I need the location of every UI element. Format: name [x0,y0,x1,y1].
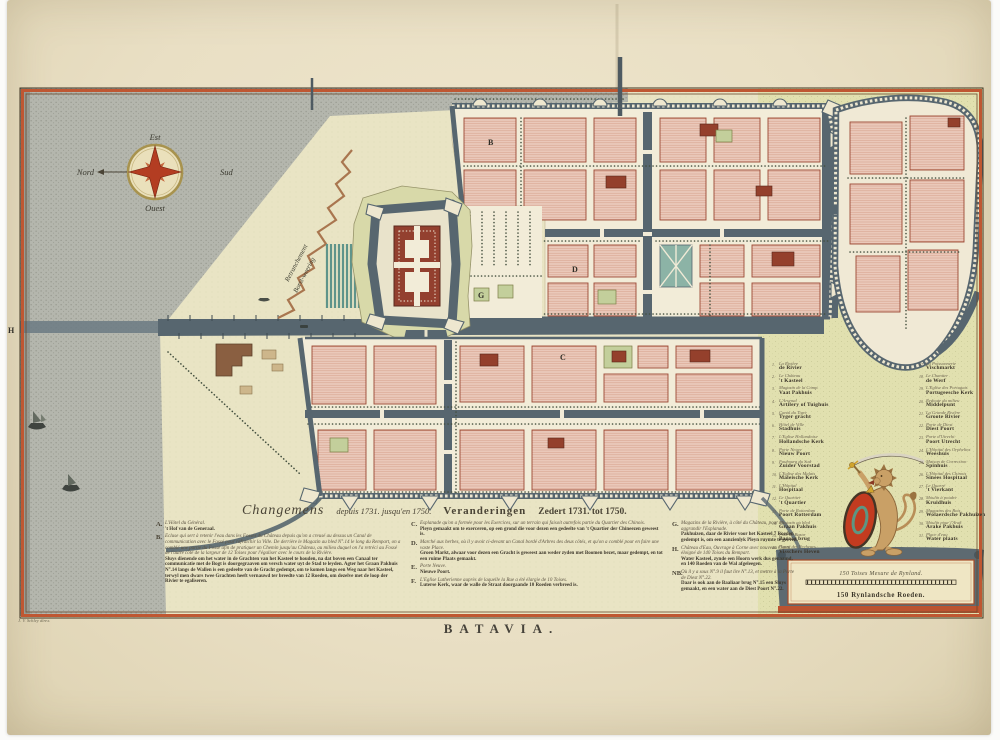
changes-entry: H.Château d'Eau, Ouvrage à Corne avec no… [672,546,798,569]
changes-entry-letter: B. [156,534,162,541]
legend-entry: 21.La Grande RivièreGroote Rivier [919,410,985,421]
changes-dates-dutch: Zedert 1731. tot 1750. [538,507,626,517]
legend-entry: 24.L'Hôpital des OrphelinsWeeshuis [919,447,985,458]
legend-entry: 22.Porte de DiestDiest Poort [919,422,985,433]
changes-entry-french: Ecluse qui sert à retenir l'eau dans les… [165,534,402,557]
legend-dutch: 't Vierkant [926,488,985,494]
legend-entry: 17.La PoissonnerieVischmarkt [919,361,985,372]
letter-g: G [478,291,484,300]
legend-dutch: Wolaerdsche Pakhuizen [926,513,985,519]
legend-entry: 23.Porte d'UtrechtPoort Utrecht [919,434,985,445]
legend-dutch: Spinhuis [926,464,985,470]
sword-pommel [849,462,854,467]
legend-dutch: Middelpunt [926,403,985,409]
legend-dutch: Zuider Voorstad [779,464,844,470]
compass-west-label: Ouest [145,203,165,213]
legend-dutch: Groote Rivier [926,415,985,421]
compass-east-label: Est [149,132,162,142]
legend-number: 3. [772,386,775,391]
changes-entry: B.Ecluse qui sert à retenir l'eau dans l… [156,534,402,585]
compass-north-label: Nord [76,167,95,177]
legend-number: 26. [919,472,924,477]
legend-entry: 5.Canal du TigreTyger gracht [772,410,844,421]
legend-number: 30. [919,521,924,526]
changes-entry-dutch: Groen Markt, alwaar voor dezen een Grach… [420,551,663,562]
changes-entry-dutch: Luterse Kerk, waar de walle de Straat do… [420,583,663,589]
changes-entry-dutch: 't Hof van de Generaal. [165,527,402,533]
letter-b: B [488,138,494,147]
legend-dutch: Poort Utrecht [926,440,985,446]
legend-entry: 26.L'Hôpital des ChinoisSinees Hospitaal [919,471,985,482]
legend-dutch: Vischmarkt [926,366,985,372]
changes-entry: G.Magazins de la Rivière, à côté du Chât… [672,521,798,544]
lion-sword-arm [860,473,871,490]
changes-column-gh: G.Magazins de la Rivière, à côté du Chât… [672,521,798,595]
legend-number: 11. [772,484,777,489]
changes-entry-letter: D. [411,540,417,547]
legend-number: 25. [919,460,924,465]
legend-dutch: Vaat Pakhuis [779,391,844,397]
changes-entry-dutch: Pakhuizen, daar de Rivier voor het Kaste… [681,532,798,543]
changes-dates-french: depuis 1731. jusqu'en 1750. [336,506,431,516]
engraver-signature: J. V. Schley direx. [18,618,50,623]
changes-title-french: Changemens [242,503,324,519]
legend-entry: 3.Magazin de la Comp.Vaat Pakhuis [772,385,844,396]
changes-entry-dutch: Pleyn gemaakt om te exerceren, op een gr… [420,527,663,538]
changes-entry-letter: C. [411,521,417,528]
south-district [300,338,770,510]
batavia-map-sheet: Est Nord Sud Ouest Retranchement Borst-w… [0,0,1000,740]
changes-entry-french: Château d'Eau, Ouvrage à Corne avec nouv… [681,546,798,557]
legend-number: 1. [772,362,775,367]
legend-entry: 27.Le Quarré't Vierkant [919,483,985,494]
legend-number: 27. [919,484,924,489]
legend-entry: 31.Place d'eauWater plaats [919,532,985,543]
legend-entry: 28.Moulin à poudreKruidhuis [919,495,985,506]
changes-entry-letter: E. [411,564,417,571]
legend-number: 10. [772,472,777,477]
changes-entry-letter: H. [672,546,679,553]
changes-entry: A.L'Hôtel du Général.'t Hof van de Gener… [156,521,402,532]
legend-entry: 1.La Rivièrede Rivier [772,361,844,372]
changes-entry-french: Magazins de la Rivière, à côté du Châtea… [681,521,798,532]
legend-number: 17. [919,362,924,367]
legend-dutch: Hospitaal [779,488,844,494]
legend-number: 23. [919,435,924,440]
legend-dutch: Maleische Kerk [779,476,844,482]
legend-entry: 9.Faubourg du SudZuider Voorstad [772,459,844,470]
legend-number: 22. [919,423,924,428]
legend-dutch: Nieuw Poort [779,452,844,458]
legend-number: 18. [919,374,924,379]
changes-entry-dutch: Nieuwe Poort. [420,570,663,576]
legend-dutch: Kruidhuis [926,501,985,507]
legend-dutch: 't Kasteel [779,379,844,385]
legend-number: 7. [772,435,775,440]
changes-entry-letter: G. [672,521,679,528]
legend-entry: 2.Le Château't Kasteel [772,373,844,384]
changes-header: Changemens depuis 1731. jusqu'en 1750. V… [156,503,800,519]
scale-label-dutch: 150 Rynlandsche Roeden. [837,592,925,599]
legend-number: 12. [772,496,777,501]
legend-dutch: de Rivier [779,366,844,372]
legend-number: 19. [919,386,924,391]
changes-entry: F.L'Eglise Lutherienne auprès de laquell… [411,578,663,589]
legend-dutch: Artilery of Tuighuis [779,403,844,409]
legend-dutch: Weeshuis [926,452,985,458]
legend-dutch: Water plaats [926,537,985,543]
changes-entry-letter: A. [156,521,162,528]
legend-dutch: Hollandsche Kerk [779,440,844,446]
legend-number: 9. [772,460,775,465]
legend-number: 6. [772,423,775,428]
legend-number: 20. [919,399,924,404]
changes-column-cf: C.Esplanade qu'on a formée pour les Exer… [411,521,663,595]
legend-entry: 4.L'ArsenalArtilery of Tuighuis [772,398,844,409]
changes-entry-french: Esplanade qu'on a formée pour les Exerci… [420,521,663,527]
legend-number: 29. [919,509,924,514]
letter-d: D [572,265,578,274]
changes-block: Changemens depuis 1731. jusqu'en 1750. V… [156,503,800,615]
changes-entry-french: Marché aux herbes, où il y avoit ci-deva… [420,540,663,551]
legend-dutch: Portugeesche Kerk [926,391,985,397]
legend-entry: 25.Maison de CorrectionSpinhuis [919,459,985,470]
legend-entry: 11.L'HôpitalHospitaal [772,483,844,494]
legend-number: 28. [919,496,924,501]
legend-number: 31. [919,533,924,538]
legend-column-right: 17.La PoissonnerieVischmarkt18.Le Chanti… [919,361,985,544]
changes-entry-dutch: Daar is ook aan de Baaliaar brug N°.15 e… [681,581,798,592]
legend-dutch: Tyger gracht [779,415,844,421]
letter-c: C [560,353,566,362]
legend-dutch: Stadhuis [779,427,844,433]
changes-column-ab: A.L'Hôtel du Général.'t Hof van de Gener… [156,521,402,595]
legend-dutch: Arake Pakhuis [926,525,985,531]
dutch-lion-crest [838,450,930,564]
legend-entry: 19.L'Eglise des PortugaisPortugeesche Ke… [919,385,985,396]
changes-entry-french: Où il y a sous N°.9 il faut lire N°.13, … [681,570,798,581]
legend-entry: 10.L'Eglise des MalaisMaleische Kerk [772,471,844,482]
legend-number: 24. [919,448,924,453]
legend-number: 5. [772,411,775,416]
compass-south-label: Sud [220,167,234,177]
legend-entry: 6.Hôtel de VilleStadhuis [772,422,844,433]
legend-dutch: de Werf [926,379,985,385]
legend-number: 21. [919,411,924,416]
legend-number: 2. [772,374,775,379]
changes-entry-dutch: Sluys dienende om het water in de Gracht… [165,557,402,585]
legend-entry: 7.L'Eglise HollandoiseHollandsche Kerk [772,434,844,445]
legend-dutch: Sinees Hospitaal [926,476,985,482]
legend-entry: 20.Redoute du milieuMiddelpunt [919,398,985,409]
changes-entry-dutch: Water Kasteel, zynde een Hoorn werk dus … [681,557,798,568]
legend-entry: 18.Le Chantierde Werf [919,373,985,384]
changes-title-dutch: Veranderingen [443,505,526,517]
legend-dutch: Diest Poort [926,427,985,433]
changes-entry: E.Porte Neuve.Nieuwe Poort. [411,564,663,575]
changes-entry-letter: F. [411,578,416,585]
changes-entry-letter: NB. [672,570,683,577]
esplanade [462,206,542,318]
letter-h: H [8,326,15,335]
legend-entry: 29.Magazins des BoisWolaerdsche Pakhuize… [919,508,985,519]
legend-number: 4. [772,399,775,404]
legend-number: 8. [772,448,775,453]
legend-entry: 30.Moulin pour l'ArakArake Pakhuis [919,520,985,531]
market-square [660,245,692,287]
changes-entry: D.Marché aux herbes, où il y avoit ci-de… [411,540,663,563]
changes-entry: C.Esplanade qu'on a formée pour les Exer… [411,521,663,538]
scale-bar [806,580,956,585]
changes-entry: NB.Où il y a sous N°.9 il faut lire N°.1… [672,570,798,593]
map-title: BATAVIA. [20,621,983,637]
legend-entry: 8.Porte NeuveNieuw Poort [772,447,844,458]
scale-label-french: 150 Toises Mesure de Rynland. [839,571,922,577]
